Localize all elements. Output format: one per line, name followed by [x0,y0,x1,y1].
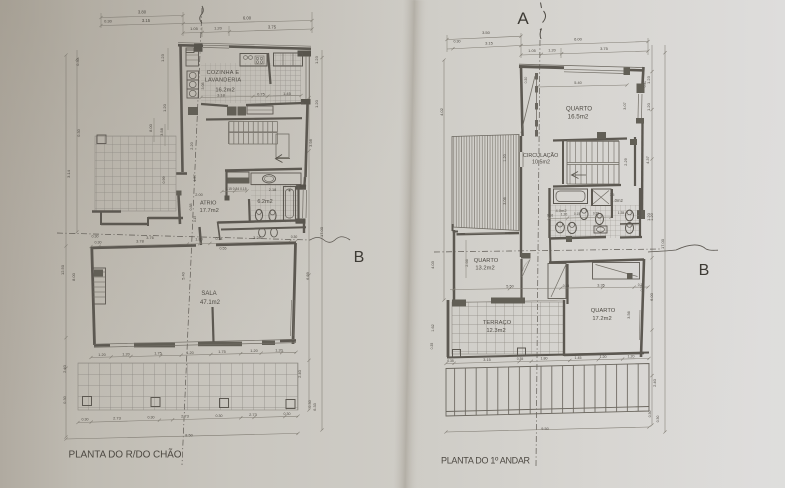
svg-text:13.2m2: 13.2m2 [475,266,494,272]
svg-text:SALA: SALA [201,291,216,297]
svg-text:1.62: 1.62 [431,324,435,331]
svg-text:3.50: 3.50 [482,30,491,35]
svg-text:1.23: 1.23 [160,53,165,62]
svg-text:1.20: 1.20 [646,102,651,111]
svg-text:3.18: 3.18 [217,93,226,98]
svg-text:3.15: 3.15 [485,41,494,46]
svg-text:0.35: 0.35 [447,359,454,363]
svg-text:1.05: 1.05 [190,26,199,31]
svg-text:6.33: 6.33 [313,403,317,410]
svg-text:47.1m2: 47.1m2 [200,300,221,306]
svg-text:4.0m2: 4.0m2 [611,198,623,203]
svg-text:0.35: 0.35 [593,212,599,216]
svg-text:1.20: 1.20 [275,349,282,353]
svg-text:8.00: 8.00 [71,272,76,281]
svg-text:2.73: 2.73 [113,416,122,421]
svg-text:1.20: 1.20 [600,355,607,359]
svg-text:1.20: 1.20 [98,353,105,357]
svg-text:1.35: 1.35 [618,211,625,215]
svg-text:0.15: 0.15 [574,212,580,216]
svg-text:0.30: 0.30 [284,412,291,416]
svg-text:0.30: 0.30 [308,400,312,407]
svg-text:0.30: 0.30 [92,235,99,239]
svg-text:0.35: 0.35 [430,343,434,350]
svg-text:3.58: 3.58 [159,127,164,136]
svg-text:ATRIO: ATRIO [200,201,217,207]
svg-text:1.57: 1.57 [193,175,197,182]
svg-text:3.75: 3.75 [268,25,277,30]
svg-text:0.15: 0.15 [563,284,570,288]
svg-text:0.30: 0.30 [76,58,80,65]
svg-text:1.80: 1.80 [541,357,548,361]
svg-text:3.08: 3.08 [201,83,205,90]
svg-text:2.29: 2.29 [624,158,628,165]
svg-text:4.37: 4.37 [645,155,650,164]
svg-text:2.40: 2.40 [652,378,657,387]
svg-text:0.30: 0.30 [291,235,298,239]
svg-text:LAVANDERIA: LAVANDERIA [205,78,242,84]
svg-text:1.20: 1.20 [250,349,257,353]
svg-text:8.50: 8.50 [185,434,192,438]
svg-text:0.35: 0.35 [517,357,524,361]
svg-text:8.00: 8.00 [148,123,153,132]
svg-text:17.00: 17.00 [660,238,665,249]
svg-text:3.56: 3.56 [627,311,631,318]
svg-text:B: B [354,249,365,266]
svg-text:0.15 0.84 0.15: 0.15 0.84 0.15 [225,187,246,191]
svg-text:1.20: 1.20 [186,351,193,355]
svg-text:0.30: 0.30 [148,416,155,420]
svg-text:3.06: 3.06 [503,197,507,204]
svg-text:5.40: 5.40 [182,272,186,279]
svg-text:3.75: 3.75 [600,46,609,51]
svg-text:PLANTA DO R/DO CHÃO: PLANTA DO R/DO CHÃO [69,448,182,461]
svg-text:1.23: 1.23 [314,55,319,64]
svg-text:1.45: 1.45 [283,91,292,96]
svg-text:QUARTO: QUARTO [591,308,616,314]
svg-text:0.30: 0.30 [77,129,81,136]
svg-text:3.35: 3.35 [597,283,604,287]
svg-text:6.00: 6.00 [649,292,654,301]
svg-text:2.40: 2.40 [62,364,67,373]
svg-text:0.30: 0.30 [300,184,307,188]
svg-text:1.20: 1.20 [214,26,223,31]
svg-text:5.40: 5.40 [574,81,581,85]
svg-text:9.50: 9.50 [541,427,548,431]
svg-text:1.80: 1.80 [195,238,202,242]
svg-text:12.50: 12.50 [60,264,65,275]
svg-text:3.15: 3.15 [142,18,151,23]
svg-text:COZINHA E: COZINHA E [207,70,240,76]
svg-text:1.75: 1.75 [218,350,225,354]
svg-text:B: B [699,262,710,279]
svg-text:6.00: 6.00 [243,16,252,21]
svg-text:0.16: 0.16 [547,214,553,218]
svg-text:2.73: 2.73 [181,414,190,419]
svg-text:17.2m2: 17.2m2 [592,316,611,322]
svg-text:1.45: 1.45 [575,356,582,360]
svg-text:1.05: 1.05 [528,49,535,53]
svg-text:2.20: 2.20 [190,142,194,149]
svg-text:1.20: 1.20 [561,213,568,217]
svg-text:0.30: 0.30 [454,40,461,44]
svg-text:10.5m2: 10.5m2 [532,160,550,166]
svg-text:CIRCULAÇÃO: CIRCULAÇÃO [523,152,558,159]
svg-text:5.50: 5.50 [506,285,513,289]
svg-text:2.18: 2.18 [269,188,276,192]
svg-text:QUARTO: QUARTO [566,106,592,113]
svg-text:0.30: 0.30 [82,418,89,422]
svg-text:1.20: 1.20 [503,154,507,161]
svg-text:3.80: 3.80 [138,10,147,15]
svg-text:0.75: 0.75 [257,92,266,97]
svg-text:QUARTO: QUARTO [474,258,499,264]
svg-text:3.07: 3.07 [623,102,627,109]
svg-text:2.00: 2.00 [195,193,202,197]
svg-text:1.20: 1.20 [628,355,635,359]
svg-text:4.03: 4.03 [430,260,435,269]
svg-text:TERRAÇO: TERRAÇO [483,320,512,326]
svg-text:12.3m2: 12.3m2 [486,328,505,334]
svg-text:1.20: 1.20 [650,213,654,220]
svg-text:0.88: 0.88 [189,204,193,211]
svg-text:4.02: 4.02 [439,107,444,116]
svg-text:3.15: 3.15 [483,358,490,362]
svg-text:1.20: 1.20 [314,99,319,108]
svg-text:1.20: 1.20 [548,49,555,53]
svg-text:1.20: 1.20 [162,103,167,112]
svg-text:6.2m2: 6.2m2 [257,199,272,205]
svg-text:A: A [517,9,529,28]
svg-text:1.75: 1.75 [154,352,161,356]
svg-text:0.15: 0.15 [193,216,197,222]
svg-text:3.28: 3.28 [253,235,262,240]
svg-text:0.30: 0.30 [104,19,113,24]
svg-text:16.5m2: 16.5m2 [568,114,589,121]
svg-text:0.30: 0.30 [524,77,528,84]
svg-text:17.00: 17.00 [319,226,324,237]
svg-text:1.20: 1.20 [122,352,129,356]
svg-text:0.30: 0.30 [643,81,647,88]
svg-text:2.66: 2.66 [465,259,469,266]
svg-text:PLANTA DO 1º ANDAR: PLANTA DO 1º ANDAR [441,456,531,466]
svg-text:3.98: 3.98 [308,138,313,147]
svg-text:0.24: 0.24 [216,237,223,241]
svg-text:0.30: 0.30 [648,411,652,418]
svg-text:0.30: 0.30 [216,414,223,418]
svg-text:3.76: 3.76 [146,236,153,240]
svg-text:0.30: 0.30 [63,396,67,403]
svg-text:17.7m2: 17.7m2 [200,208,219,214]
svg-text:0.30: 0.30 [95,241,102,245]
svg-text:3.14: 3.14 [66,169,71,178]
svg-text:6.00: 6.00 [574,37,583,42]
svg-text:0.55: 0.55 [220,247,227,251]
svg-text:6.39: 6.39 [305,271,310,280]
svg-text:2.73: 2.73 [249,412,258,417]
svg-text:0.30: 0.30 [656,416,660,423]
svg-text:3.78: 3.78 [136,239,145,244]
